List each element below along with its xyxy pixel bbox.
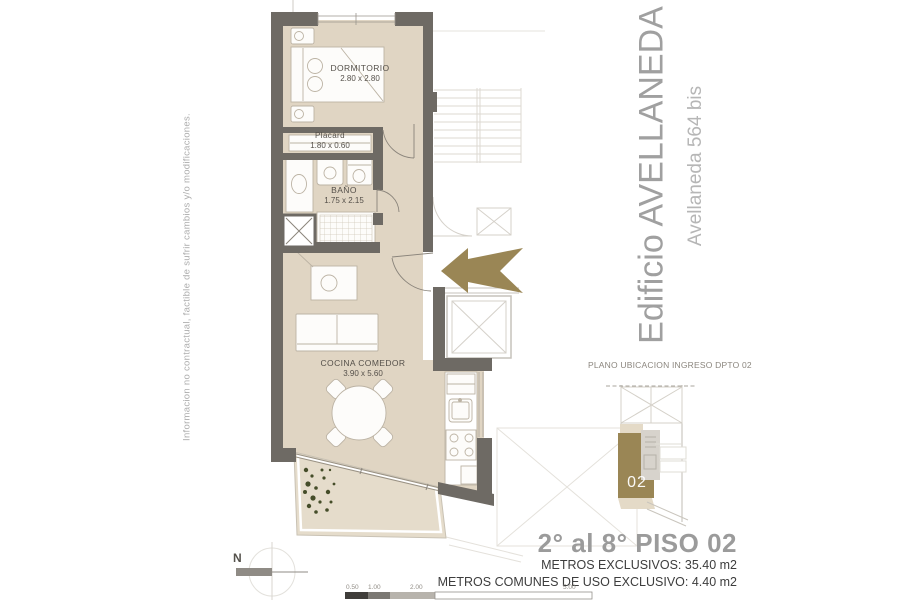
building-title: Edificio AVELLANEDA xyxy=(633,6,672,344)
floor-title: 2° al 8° PISO 02 xyxy=(438,530,737,556)
bidet xyxy=(317,157,343,185)
room-name: COCINA COMEDOR xyxy=(312,358,414,369)
entrance-arrow-icon xyxy=(441,248,523,293)
floor-plan-drawing xyxy=(0,0,900,600)
building-subtitle: Avellaneda 564 bis xyxy=(685,86,707,246)
location-miniplan xyxy=(606,385,697,526)
location-plan-title: PLANO UBICACION INGRESO DPTO 02 xyxy=(588,360,758,370)
nightstand-top xyxy=(291,28,314,44)
summary-block: 2° al 8° PISO 02 METROS EXCLUSIVOS: 35.4… xyxy=(438,530,737,590)
north-label: N xyxy=(233,551,242,565)
north-compass xyxy=(236,542,308,600)
duct-box xyxy=(477,208,511,235)
disclaimer-text: Informacion no contractual, factible de … xyxy=(182,113,193,441)
room-dims: 1.80 x 0.60 xyxy=(299,141,361,151)
miniplan-hatch xyxy=(621,387,682,423)
room-name: BAÑO xyxy=(309,185,379,196)
miniplan-core xyxy=(641,430,660,480)
room-dims: 2.80 x 2.80 xyxy=(310,74,410,84)
scale-tick: 5.00 xyxy=(563,584,576,591)
floor-plan-page: Informacion no contractual, factible de … xyxy=(0,0,900,600)
shaft-box xyxy=(283,215,315,247)
metros-comunes: METROS COMUNES DE USO EXCLUSIVO: 4.40 m2 xyxy=(438,576,737,590)
miniplan-neighbor xyxy=(655,444,686,472)
kitchen-counter xyxy=(445,372,477,485)
room-label-dormitorio: DORMITORIO 2.80 x 2.80 xyxy=(310,63,410,84)
scale-tick: 0.50 xyxy=(346,584,359,591)
metros-exclusivos: METROS EXCLUSIVOS: 35.40 m2 xyxy=(438,559,737,573)
room-label-cocina: COCINA COMEDOR 3.90 x 5.60 xyxy=(312,358,414,379)
miniplan-floor-strip xyxy=(620,424,643,433)
room-dims: 3.90 x 5.60 xyxy=(312,369,414,379)
room-label-placard: Placard 1.80 x 0.60 xyxy=(299,131,361,152)
scale-tick: 1.00 xyxy=(368,584,381,591)
dining-set xyxy=(325,378,395,449)
room-label-bano: BAÑO 1.75 x 2.15 xyxy=(309,185,379,206)
room-name: Placard xyxy=(299,131,361,141)
stairs xyxy=(434,88,521,163)
sofa xyxy=(296,314,378,351)
scale-bar xyxy=(345,592,592,599)
unit-number-label: 02 xyxy=(620,474,654,492)
room-name: DORMITORIO xyxy=(310,63,410,74)
hall-door xyxy=(433,197,472,236)
scale-tick: 2.00 xyxy=(410,584,423,591)
room-dims: 1.75 x 2.15 xyxy=(309,196,379,206)
nightstand-bottom xyxy=(291,106,314,122)
toilet xyxy=(347,157,372,185)
elevator xyxy=(445,288,519,358)
